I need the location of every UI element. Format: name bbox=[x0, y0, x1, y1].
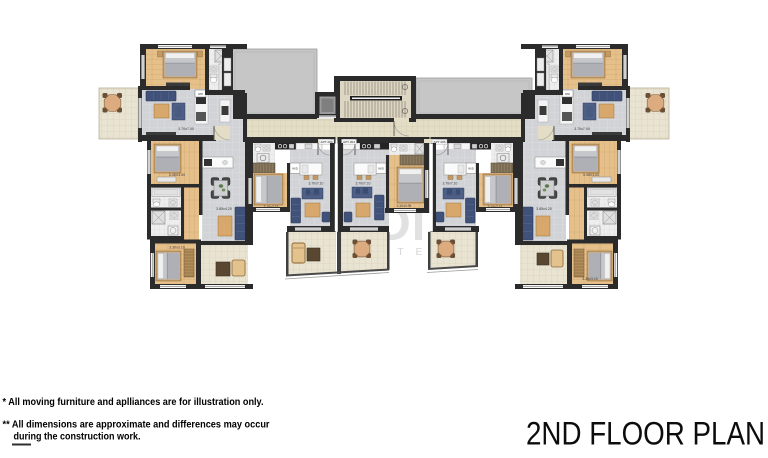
svg-text:3.70x7.00: 3.70x7.00 bbox=[178, 127, 194, 131]
svg-text:3.70x7.00: 3.70x7.00 bbox=[574, 127, 590, 131]
svg-text:3.70x7.10: 3.70x7.10 bbox=[356, 182, 371, 186]
svg-text:APT 204: APT 204 bbox=[343, 140, 355, 144]
svg-text:3.85x4.20: 3.85x4.20 bbox=[536, 207, 552, 211]
svg-text:3.85x4.20: 3.85x4.20 bbox=[216, 207, 232, 211]
svg-text:3.45X3.00: 3.45X3.00 bbox=[169, 173, 185, 177]
svg-text:W/D: W/D bbox=[468, 167, 473, 171]
svg-text:3.10x3.95: 3.10x3.95 bbox=[397, 204, 412, 208]
svg-text:W/D: W/D bbox=[378, 167, 383, 171]
svg-text:* All moving furniture and apl: * All moving furniture and aplliances ar… bbox=[3, 397, 264, 408]
svg-text:W/D: W/D bbox=[198, 92, 203, 96]
svg-text:3.70x7.10: 3.70x7.10 bbox=[309, 182, 324, 186]
svg-text:W/D: W/D bbox=[292, 167, 297, 171]
svg-text:** All dimensions are approxim: ** All dimensions are approximate and di… bbox=[3, 419, 270, 430]
svg-text:2ND FLOOR PLAN: 2ND FLOOR PLAN bbox=[526, 416, 765, 452]
svg-text:3.30x3.10: 3.30x3.10 bbox=[582, 277, 598, 281]
svg-text:during the construction work.: during the construction work. bbox=[14, 431, 141, 442]
svg-text:W/D: W/D bbox=[565, 92, 570, 96]
svg-text:3.45X3.00: 3.45X3.00 bbox=[583, 173, 599, 177]
svg-text:3.70x3.40: 3.70x3.40 bbox=[168, 82, 184, 86]
svg-text:3.70x7.10: 3.70x7.10 bbox=[443, 182, 458, 186]
svg-text:3.30x3.10: 3.30x3.10 bbox=[169, 246, 185, 250]
svg-text:3.10x3.40: 3.10x3.40 bbox=[584, 82, 600, 86]
